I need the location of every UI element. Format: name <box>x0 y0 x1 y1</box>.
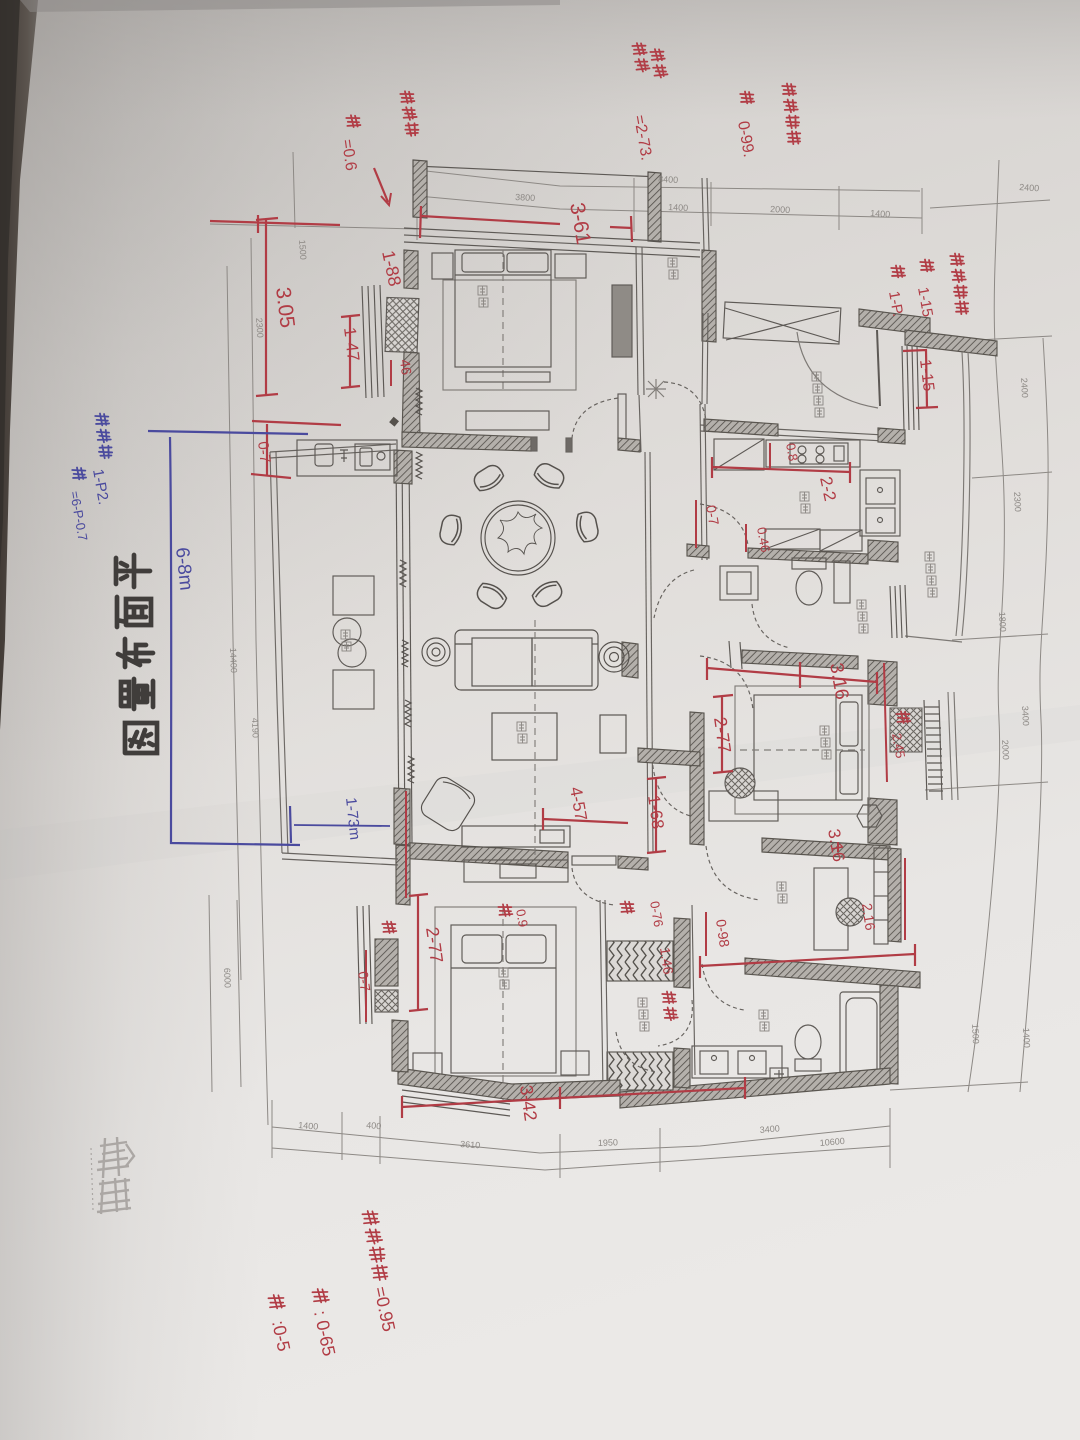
svg-text:1400: 1400 <box>668 202 689 213</box>
svg-text:2000: 2000 <box>1000 740 1011 761</box>
svg-text:1400: 1400 <box>870 208 891 219</box>
svg-text:1800: 1800 <box>997 612 1008 633</box>
svg-text:0-7: 0-7 <box>254 440 274 464</box>
svg-text:0-7: 0-7 <box>355 970 374 992</box>
svg-text:1400: 1400 <box>298 1120 319 1132</box>
svg-text:2300: 2300 <box>254 317 265 338</box>
svg-text:4190: 4190 <box>250 718 261 738</box>
svg-text:400: 400 <box>366 1120 382 1131</box>
svg-text:1400: 1400 <box>1021 1028 1032 1049</box>
svg-text:2000: 2000 <box>770 204 791 215</box>
svg-text:8400: 8400 <box>658 174 679 185</box>
svg-text:1500: 1500 <box>970 1024 981 1045</box>
svg-text:2400: 2400 <box>1019 378 1030 399</box>
svg-text:14400: 14400 <box>228 648 239 673</box>
svg-text:3610: 3610 <box>460 1139 481 1150</box>
svg-text:2400: 2400 <box>1019 182 1040 193</box>
svg-text:2300: 2300 <box>1012 492 1023 513</box>
svg-text:46: 46 <box>397 358 415 376</box>
svg-text:3400: 3400 <box>1020 706 1031 727</box>
svg-text:1500: 1500 <box>297 239 308 260</box>
svg-text:0.9: 0.9 <box>513 908 531 928</box>
svg-text:1950: 1950 <box>598 1137 618 1148</box>
svg-text:3800: 3800 <box>515 192 536 203</box>
svg-text:6000: 6000 <box>222 968 233 988</box>
svg-text:3400: 3400 <box>759 1123 780 1135</box>
svg-text:0.8: 0.8 <box>783 442 801 462</box>
